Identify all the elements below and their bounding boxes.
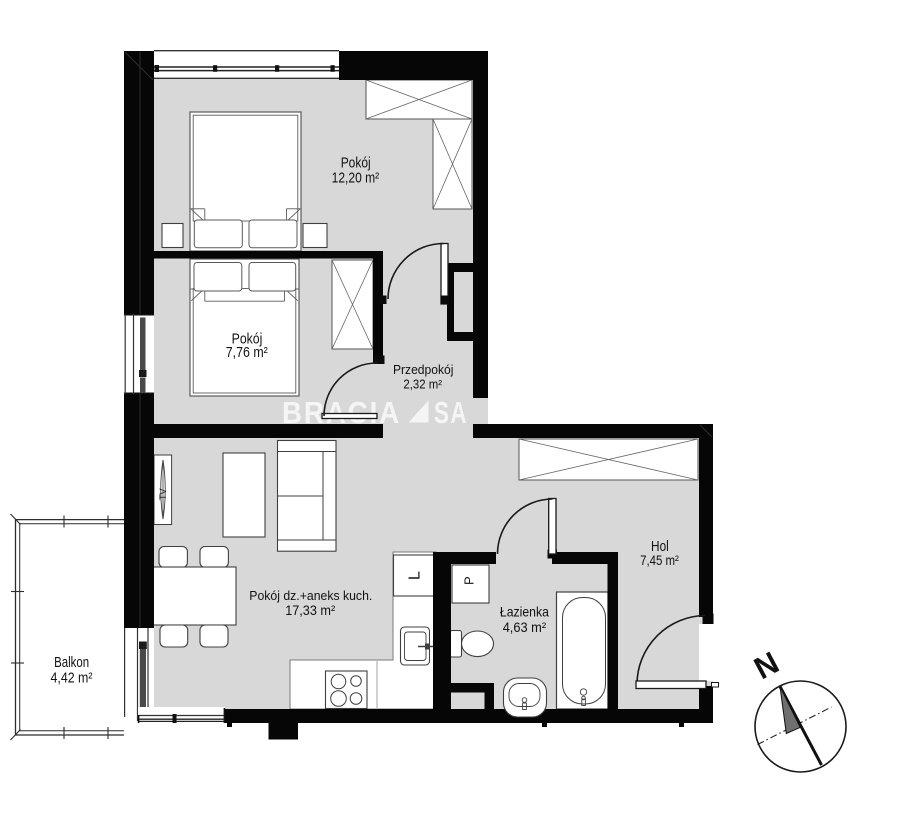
svg-text:7,45 m²: 7,45 m² xyxy=(640,552,679,568)
svg-text:L: L xyxy=(407,571,424,580)
svg-text:SA: SA xyxy=(434,395,468,430)
svg-text:4,63 m²: 4,63 m² xyxy=(503,619,547,635)
svg-text:Pokój: Pokój xyxy=(341,156,371,172)
svg-text:N: N xyxy=(748,645,784,686)
svg-text:Balkon: Balkon xyxy=(54,655,89,671)
svg-text:Pokój dz.+aneks kuch.: Pokój dz.+aneks kuch. xyxy=(249,588,372,603)
svg-text:Przedpokój: Przedpokój xyxy=(393,362,454,377)
svg-text:P: P xyxy=(462,576,477,585)
svg-text:12,20 m²: 12,20 m² xyxy=(332,170,380,186)
svg-text:Łazienka: Łazienka xyxy=(500,604,549,620)
svg-text:17,33 m²: 17,33 m² xyxy=(285,603,335,618)
svg-text:2,32 m²: 2,32 m² xyxy=(403,376,442,391)
svg-text:4,42 m²: 4,42 m² xyxy=(51,671,93,687)
svg-text:7,76 m²: 7,76 m² xyxy=(226,345,268,361)
svg-text:TV: TV xyxy=(158,488,168,500)
